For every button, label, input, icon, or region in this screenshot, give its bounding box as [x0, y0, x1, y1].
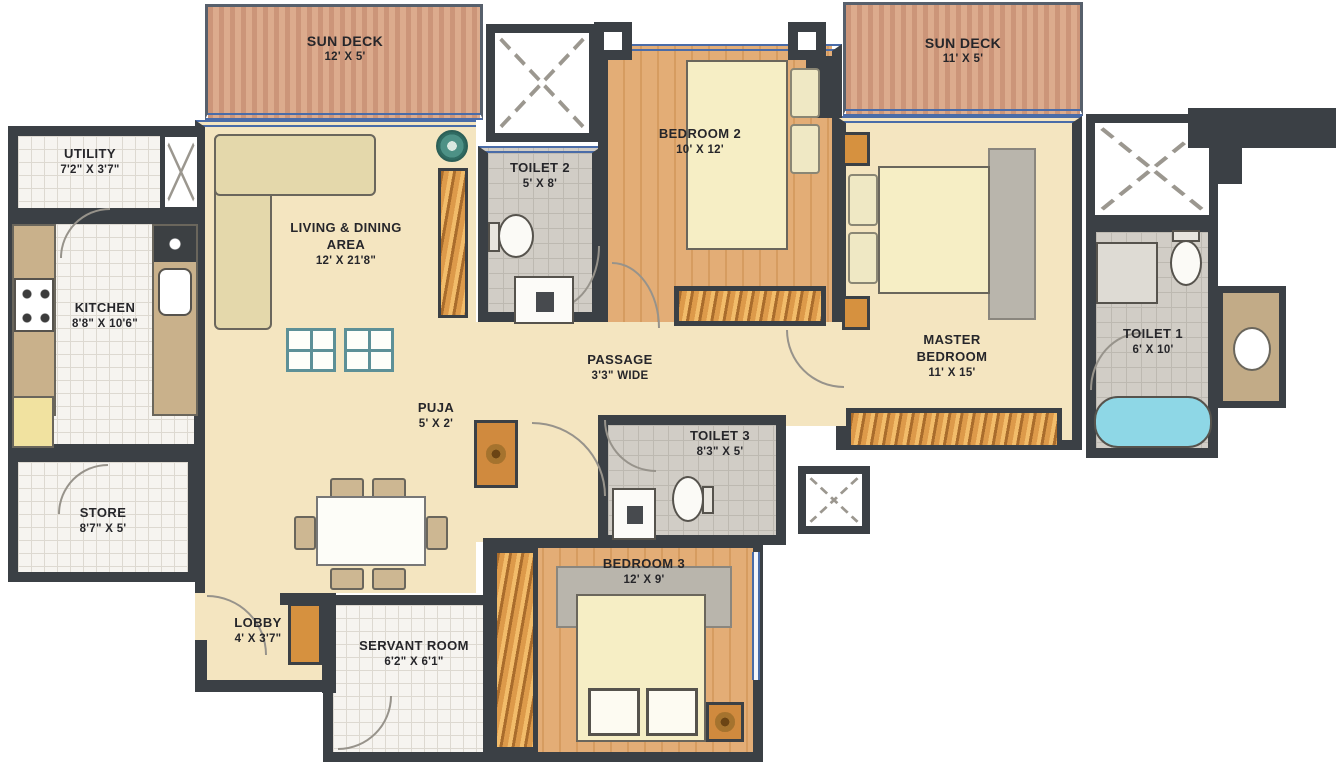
puja-medallion [486, 444, 506, 464]
duct-shaft-small [798, 466, 870, 534]
coffee-table [344, 328, 394, 372]
shower-drain [627, 506, 643, 524]
label-sun-deck-1: SUN DECK 12' X 5' [260, 32, 430, 65]
wardrobe-master [846, 408, 1062, 450]
label-passage: PASSAGE 3'3" WIDE [535, 352, 705, 384]
label-kitchen: KITCHEN 8'8" X 10'6" [30, 300, 180, 332]
pillow [790, 124, 820, 174]
wardrobe-bedroom-3 [492, 548, 538, 752]
duct-x-icon [165, 137, 197, 207]
wall-lobby-left [195, 640, 207, 692]
label-toilet-3: TOILET 3 8'3" X 5' [664, 428, 776, 460]
dresser-master [988, 148, 1036, 320]
coffee-table [286, 328, 336, 372]
label-toilet-2: TOILET 2 5' X 8' [488, 160, 592, 192]
pillow [646, 688, 698, 736]
bed-master [878, 166, 990, 294]
label-puja: PUJA 5' X 2' [402, 400, 470, 432]
side-table [842, 132, 870, 166]
toilet-3-shower [612, 488, 656, 540]
column [788, 22, 826, 60]
shower-drain [536, 292, 554, 312]
bathtub [1094, 396, 1212, 448]
sofa-l-horizontal [214, 134, 376, 196]
label-lobby: LOBBY 4' X 3'7" [210, 615, 306, 647]
kitchen-hob [154, 226, 196, 262]
duct-x-icon [495, 33, 589, 133]
column [594, 22, 632, 60]
duct-shaft-top [486, 24, 598, 142]
label-living-dining: LIVING & DINING AREA 12' X 21'8" [278, 220, 414, 269]
toilet-2-wc [498, 214, 534, 258]
label-bedroom-2: BEDROOM 2 10' X 12' [630, 126, 770, 158]
dining-table [316, 496, 426, 566]
side-table [706, 702, 744, 742]
column-hole [798, 32, 816, 50]
wall-segment [1188, 108, 1336, 148]
floor-plan: SUN DECK 12' X 5' SUN DECK 11' X 5' UTIL… [0, 0, 1336, 762]
label-bedroom-3: BEDROOM 3 12' X 9' [564, 556, 724, 588]
dining-chair [426, 516, 448, 550]
duct-shaft-utility [160, 132, 202, 212]
dining-chair [330, 568, 364, 590]
dining-chair [372, 568, 406, 590]
wall-segment [1218, 146, 1242, 184]
label-servant-room: SERVANT ROOM 6'2" X 6'1" [352, 638, 476, 670]
tv-cabinet [438, 168, 468, 318]
side-table [842, 296, 870, 330]
plant-medallion [436, 130, 468, 162]
toilet-1-shower [1096, 242, 1158, 304]
pillow [790, 68, 820, 118]
label-store: STORE 8'7" X 5' [48, 505, 158, 537]
dining-chair [294, 516, 316, 550]
toilet-3-wc [672, 476, 704, 522]
toilet-1-wc [1170, 240, 1202, 286]
puja-cabinet [474, 420, 518, 488]
window-bedroom-3 [752, 552, 760, 680]
wall-lobby-bottom [195, 680, 336, 692]
label-master-bedroom: MASTER BEDROOM 11' X 15' [894, 332, 1010, 381]
wall-lobby-right [322, 593, 336, 693]
kitchen-cabinet [12, 396, 54, 448]
pillow [848, 232, 878, 284]
duct-x-icon [806, 474, 862, 526]
label-utility: UTILITY 7'2" X 3'7" [26, 146, 154, 178]
table-decor [715, 712, 735, 732]
pillow [588, 688, 640, 736]
toilet-1-sink-counter [1216, 286, 1286, 408]
label-toilet-1: TOILET 1 6' X 10' [1098, 326, 1208, 358]
wardrobe-bedroom-2 [674, 286, 826, 326]
column-hole [604, 32, 622, 50]
toilet-1-sink-basin [1233, 327, 1271, 371]
pillow [848, 174, 878, 226]
toilet-2-shower [514, 276, 574, 324]
label-sun-deck-2: SUN DECK 11' X 5' [873, 34, 1053, 67]
